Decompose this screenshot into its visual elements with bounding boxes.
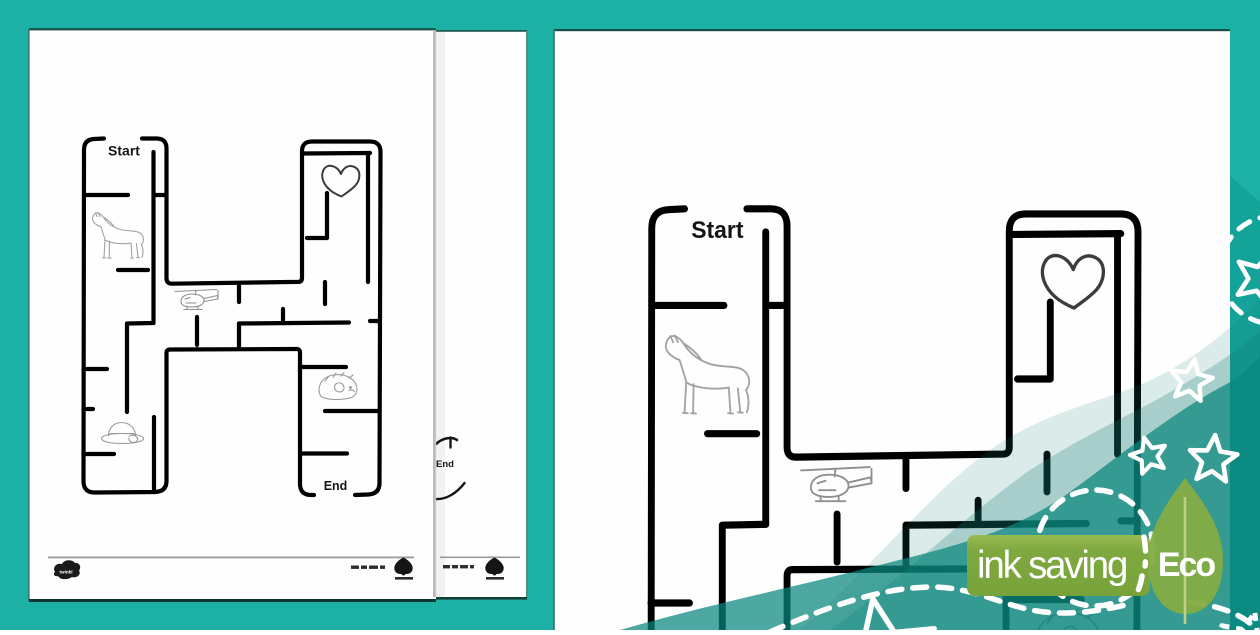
svg-text:twinkl: twinkl — [59, 570, 72, 575]
svg-text:ink saving: ink saving — [977, 544, 1126, 587]
svg-text:End: End — [436, 459, 454, 470]
svg-text:Eco: Eco — [1158, 546, 1216, 584]
